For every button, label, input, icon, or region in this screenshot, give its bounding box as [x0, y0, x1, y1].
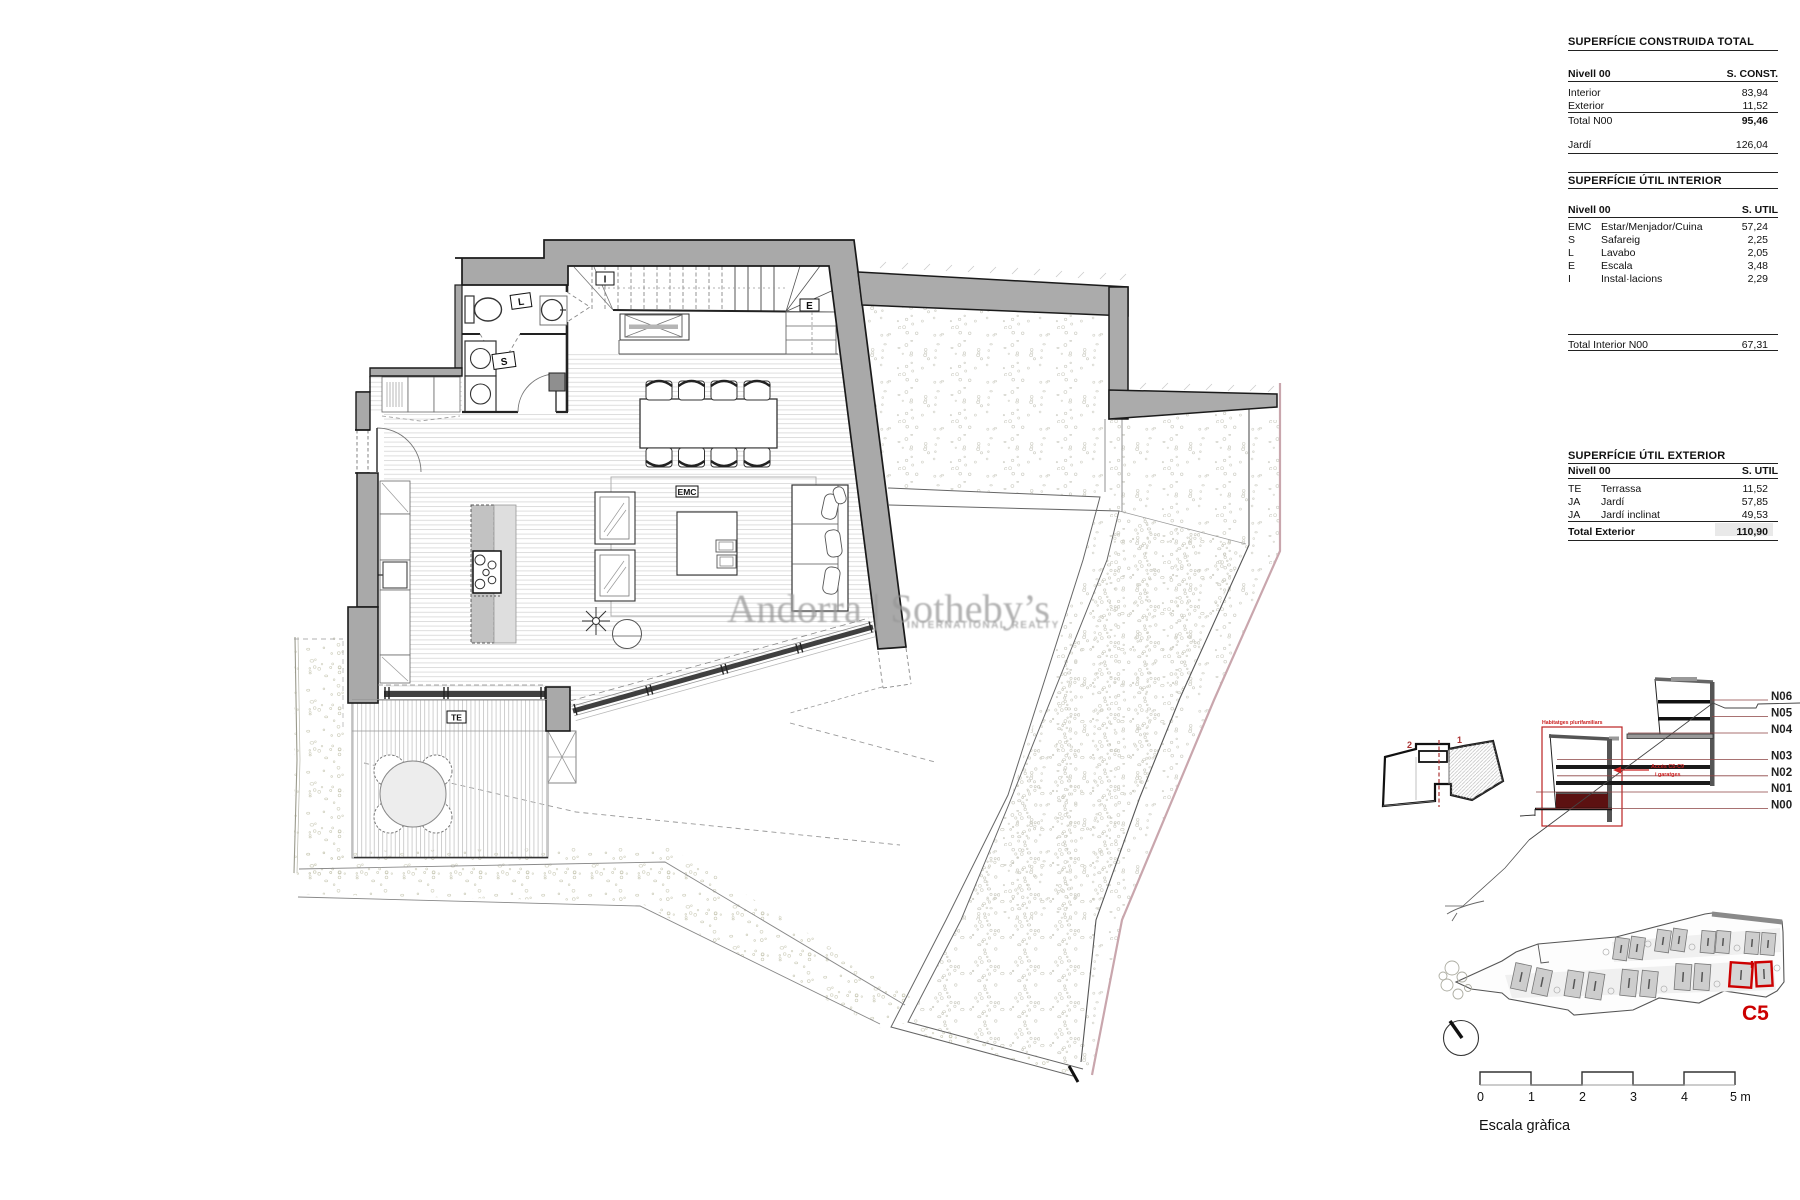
svg-text:5 m: 5 m	[1730, 1090, 1751, 1104]
svg-text:Habitatges plurifamiliars: Habitatges plurifamiliars	[1542, 720, 1603, 726]
svg-text:Escala gràfica: Escala gràfica	[1479, 1118, 1571, 1134]
svg-text:N06: N06	[1771, 691, 1792, 703]
svg-text:N02: N02	[1771, 767, 1792, 779]
svg-text:1: 1	[1457, 735, 1462, 745]
svg-text:N03: N03	[1771, 751, 1792, 763]
svg-text:3: 3	[1630, 1090, 1637, 1104]
svg-text:N01: N01	[1771, 783, 1793, 795]
svg-text:EMC: EMC	[678, 487, 697, 497]
svg-text:I: I	[604, 275, 607, 286]
svg-text:E: E	[806, 301, 813, 312]
svg-text:i garatges: i garatges	[1655, 772, 1680, 778]
svg-text:Accés C5-C9: Accés C5-C9	[1651, 764, 1684, 770]
svg-text:N00: N00	[1771, 800, 1792, 812]
svg-text:TE: TE	[451, 713, 462, 723]
svg-text:C5: C5	[1742, 1002, 1769, 1025]
svg-text:1: 1	[1528, 1090, 1535, 1104]
svg-text:2: 2	[1579, 1090, 1586, 1104]
svg-text:2: 2	[1407, 740, 1412, 750]
svg-text:0: 0	[1477, 1090, 1484, 1104]
svg-text:4: 4	[1681, 1090, 1688, 1104]
svg-text:N05: N05	[1771, 708, 1793, 720]
svg-text:N04: N04	[1771, 724, 1793, 736]
